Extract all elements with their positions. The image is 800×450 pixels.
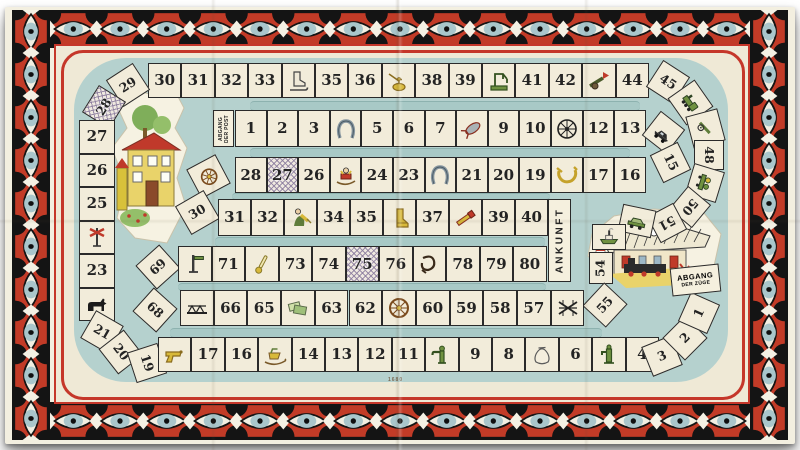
train-cell-33: 33 bbox=[248, 63, 281, 98]
train-cell-number: 42 bbox=[555, 73, 576, 88]
train-cell-34 bbox=[282, 63, 315, 98]
train-cell-6: 6 bbox=[559, 337, 592, 372]
post-cell-number: 40 bbox=[521, 210, 542, 225]
post-cell-number: 12 bbox=[588, 121, 609, 136]
post-cell-27: 27 bbox=[267, 157, 299, 193]
train-cell-31: 31 bbox=[181, 63, 214, 98]
train-cell-65: 65 bbox=[247, 290, 281, 326]
train-cell-number: 36 bbox=[355, 73, 376, 88]
train-cell-number: 21 bbox=[91, 322, 112, 342]
post-cell-20: 20 bbox=[488, 157, 520, 193]
post-cell-number: 1 bbox=[246, 121, 256, 136]
train-cell-76: 76 bbox=[379, 246, 413, 282]
sack-icon bbox=[530, 343, 554, 367]
post-cell-18 bbox=[551, 157, 583, 193]
train-cell-number: 68 bbox=[144, 300, 165, 321]
steamboat-icon bbox=[599, 227, 619, 247]
post-cell-number: 28 bbox=[240, 168, 261, 183]
crossing-sign-icon bbox=[85, 225, 109, 249]
satchel-icon bbox=[417, 252, 441, 276]
train-cell-number: 73 bbox=[285, 257, 306, 272]
post-cell-17: 17 bbox=[583, 157, 615, 193]
train-cell-35: 35 bbox=[315, 63, 348, 98]
train-cell-number: 60 bbox=[422, 301, 443, 316]
post-cell-number: 24 bbox=[367, 168, 388, 183]
post-cell-2: 2 bbox=[267, 110, 299, 147]
train-cell-number: 71 bbox=[218, 257, 239, 272]
post-cell-number: 13 bbox=[620, 121, 641, 136]
post-cell-37: 37 bbox=[416, 199, 449, 236]
post-cell-21: 21 bbox=[456, 157, 488, 193]
post-cell-34: 34 bbox=[317, 199, 350, 236]
field-gun-icon bbox=[693, 116, 717, 140]
train-cell-number: 6 bbox=[570, 347, 580, 362]
train-cell-80: 80 bbox=[513, 246, 547, 282]
train-cell-number: 38 bbox=[421, 73, 442, 88]
horseshoe-icon bbox=[428, 163, 452, 187]
train-cell-number: 79 bbox=[486, 257, 507, 272]
post-cell-38 bbox=[449, 199, 482, 236]
post-cell-number: 20 bbox=[493, 168, 514, 183]
post-cell-number: 7 bbox=[435, 121, 445, 136]
pistol-icon bbox=[163, 343, 187, 367]
train-cell-number: 30 bbox=[154, 73, 175, 88]
train-cell-number: 25 bbox=[87, 196, 108, 211]
boot-icon bbox=[388, 206, 412, 230]
train-cell-number: 23 bbox=[87, 263, 108, 278]
post-cell-number: 17 bbox=[588, 168, 609, 183]
semaphore-icon bbox=[183, 252, 207, 276]
train-cell-60: 60 bbox=[416, 290, 450, 326]
eye-border-bottom bbox=[50, 402, 750, 440]
train-cell-number: 12 bbox=[365, 347, 386, 362]
post-cell-12: 12 bbox=[583, 110, 615, 147]
wagon-wheel-icon bbox=[555, 117, 579, 141]
post-cell-number: 31 bbox=[224, 210, 245, 225]
train-cell-number: 51 bbox=[656, 213, 677, 232]
train-cell-number: 13 bbox=[331, 347, 352, 362]
cannon-icon bbox=[587, 69, 611, 93]
eye-border-right bbox=[750, 10, 788, 440]
train-cell-number: 32 bbox=[221, 73, 242, 88]
train-cell-8: 8 bbox=[492, 337, 525, 372]
post-cell-13: 13 bbox=[614, 110, 646, 147]
post-cell-26: 26 bbox=[298, 157, 330, 193]
eye-border-top bbox=[50, 10, 750, 48]
train-cell-16: 16 bbox=[225, 337, 258, 372]
train-cell-number: 28 bbox=[94, 96, 114, 117]
train-cell-77 bbox=[413, 246, 447, 282]
train-cell-63: 63 bbox=[315, 290, 349, 326]
train-cell-number: 39 bbox=[455, 73, 476, 88]
post-cell-4 bbox=[330, 110, 362, 147]
harvest-woman-icon bbox=[289, 206, 313, 230]
train-cell-75: 75 bbox=[346, 246, 380, 282]
motorcar-green-icon bbox=[625, 209, 649, 233]
post-cell-number: 6 bbox=[404, 121, 414, 136]
bridge-icon bbox=[185, 296, 209, 320]
post-cell-31: 31 bbox=[218, 199, 251, 236]
post-cell-6: 6 bbox=[393, 110, 425, 147]
post-cell-number: 35 bbox=[356, 210, 377, 225]
train-cell-number: 1 bbox=[692, 306, 707, 319]
train-cell-17: 17 bbox=[191, 337, 224, 372]
spyglass-icon bbox=[454, 206, 478, 230]
train-cell-number: 9 bbox=[470, 347, 480, 362]
post-cell-24: 24 bbox=[361, 157, 393, 193]
post-cell-number: 16 bbox=[620, 168, 641, 183]
post-cell-7: 7 bbox=[425, 110, 457, 147]
train-cell-30: 30 bbox=[148, 63, 181, 98]
banknotes-icon bbox=[286, 296, 310, 320]
train-cell-number: 14 bbox=[298, 347, 319, 362]
post-cell-number: 3 bbox=[309, 121, 319, 136]
finish-cell: ANKUNFT bbox=[548, 199, 571, 282]
train-cell-24 bbox=[79, 221, 115, 255]
train-cell-59: 59 bbox=[450, 290, 484, 326]
train-cell-58: 58 bbox=[483, 290, 517, 326]
coach-wheel-icon bbox=[195, 163, 222, 190]
post-cell-number: 19 bbox=[525, 168, 546, 183]
train-cell-number: 75 bbox=[352, 257, 373, 272]
rail-switch-icon bbox=[556, 296, 580, 320]
train-cell-23: 23 bbox=[79, 254, 115, 288]
post-cell-number: 27 bbox=[272, 168, 293, 183]
post-cell-10: 10 bbox=[519, 110, 551, 147]
post-cell-number: 32 bbox=[257, 210, 278, 225]
train-cell-number: 33 bbox=[254, 73, 275, 88]
train-cell-11: 11 bbox=[392, 337, 425, 372]
train-cell-32: 32 bbox=[215, 63, 248, 98]
train-cell-18 bbox=[158, 337, 191, 372]
train-cell-14: 14 bbox=[292, 337, 325, 372]
water-pump-icon bbox=[597, 343, 621, 367]
train-cell-number: 44 bbox=[622, 73, 643, 88]
train-cell-number: 17 bbox=[198, 347, 219, 362]
train-cell-10 bbox=[425, 337, 458, 372]
post-cell-36 bbox=[383, 199, 416, 236]
train-cell-53 bbox=[592, 224, 626, 250]
post-cell-number: 30 bbox=[187, 203, 208, 223]
post-cell-28: 28 bbox=[235, 157, 267, 193]
train-cell-number: 29 bbox=[117, 75, 138, 95]
train-cell-74: 74 bbox=[312, 246, 346, 282]
train-cell-number: 66 bbox=[220, 301, 241, 316]
train-cell-number: 35 bbox=[321, 73, 342, 88]
post-cell-number: 15 bbox=[661, 152, 680, 173]
train-cell-number: 48 bbox=[703, 146, 716, 163]
train-cell-number: 50 bbox=[680, 196, 701, 217]
post-start-line2: DER POST bbox=[224, 115, 230, 143]
train-cell-25: 25 bbox=[79, 187, 115, 221]
train-cell-number: 41 bbox=[522, 73, 543, 88]
train-cell-number: 3 bbox=[656, 349, 669, 364]
post-cell-11 bbox=[551, 110, 583, 147]
post-cell-number: 21 bbox=[462, 168, 483, 183]
train-cell-41: 41 bbox=[515, 63, 548, 98]
sled-icon bbox=[334, 163, 358, 187]
horseshoe-icon bbox=[334, 117, 358, 141]
post-cell-40: 40 bbox=[515, 199, 548, 236]
sleigh-icon bbox=[263, 343, 287, 367]
post-cell-22 bbox=[425, 157, 457, 193]
train-cell-number: 2 bbox=[677, 331, 692, 346]
train-cell-67 bbox=[180, 290, 214, 326]
train-cell-number: 69 bbox=[147, 257, 168, 278]
train-cell-9: 9 bbox=[459, 337, 492, 372]
train-cell-36: 36 bbox=[348, 63, 381, 98]
train-cell-61 bbox=[382, 290, 416, 326]
post-start-line1: ABGANG bbox=[218, 115, 224, 143]
motorcar-icon bbox=[649, 118, 677, 146]
crayfish-icon bbox=[460, 117, 484, 141]
train-cell-7 bbox=[525, 337, 558, 372]
train-cell-number: 63 bbox=[321, 301, 342, 316]
water-crane-icon bbox=[430, 343, 454, 367]
train-cell-number: 19 bbox=[138, 353, 155, 373]
post-cell-number: 5 bbox=[372, 121, 382, 136]
post-cell-number: 2 bbox=[277, 121, 287, 136]
post-cell-number: 34 bbox=[323, 210, 344, 225]
train-cell-42: 42 bbox=[549, 63, 582, 98]
train-cell-79: 79 bbox=[480, 246, 514, 282]
train-cell-78: 78 bbox=[446, 246, 480, 282]
train-cell-number: 74 bbox=[318, 257, 339, 272]
train-cell-57: 57 bbox=[517, 290, 551, 326]
eye-border-left bbox=[12, 10, 50, 440]
train-cell-number: 16 bbox=[231, 347, 252, 362]
train-start-label: ABGANG DER ZÜGE bbox=[670, 264, 722, 297]
train-cell-number: 26 bbox=[87, 163, 108, 178]
train-cell-54: 54 bbox=[589, 252, 613, 284]
post-cell-number: 37 bbox=[422, 210, 443, 225]
train-cell-12: 12 bbox=[358, 337, 391, 372]
train-cell-number: 8 bbox=[503, 347, 513, 362]
train-cell-66: 66 bbox=[214, 290, 248, 326]
train-cell-73: 73 bbox=[279, 246, 313, 282]
train-cell-70 bbox=[178, 246, 212, 282]
post-cell-1: 1 bbox=[235, 110, 267, 147]
train-cell-44: 44 bbox=[616, 63, 649, 98]
train-cell-62: 62 bbox=[349, 290, 383, 326]
train-cell-39: 39 bbox=[449, 63, 482, 98]
post-cell-33 bbox=[284, 199, 317, 236]
post-cell-number: 9 bbox=[498, 121, 508, 136]
train-cell-15 bbox=[258, 337, 291, 372]
post-cell-9: 9 bbox=[488, 110, 520, 147]
train-cell-64 bbox=[281, 290, 315, 326]
train-cell-27: 27 bbox=[79, 120, 115, 154]
train-cell-26: 26 bbox=[79, 154, 115, 188]
post-cell-16: 16 bbox=[614, 157, 646, 193]
game-board: 1235679101213151617192021232426272830313… bbox=[0, 0, 800, 450]
post-cell-35: 35 bbox=[350, 199, 383, 236]
thermometer-icon bbox=[250, 252, 274, 276]
post-cell-32: 32 bbox=[251, 199, 284, 236]
train-cell-number: 27 bbox=[87, 129, 108, 144]
train-cell-number: 54 bbox=[595, 259, 608, 276]
train-cell-56 bbox=[551, 290, 585, 326]
train-cell-number: 58 bbox=[490, 301, 511, 316]
train-cell-number: 62 bbox=[355, 301, 376, 316]
post-cell-5: 5 bbox=[361, 110, 393, 147]
train-cell-number: 80 bbox=[519, 257, 540, 272]
post-start-label: ABGANGDER POST bbox=[213, 110, 234, 147]
train-cell-number: 45 bbox=[657, 72, 678, 92]
post-cell-number: 23 bbox=[398, 168, 419, 183]
ice-skate-icon bbox=[286, 69, 310, 93]
post-cell-8 bbox=[456, 110, 488, 147]
train-cell-5 bbox=[592, 337, 625, 372]
plate-number: 1680 bbox=[388, 377, 403, 383]
train-cell-number: 11 bbox=[398, 347, 419, 362]
train-cell-71: 71 bbox=[212, 246, 246, 282]
train-cell-40 bbox=[482, 63, 515, 98]
finish-label: ANKUNFT bbox=[554, 208, 565, 274]
post-cell-number: 26 bbox=[304, 168, 325, 183]
train-cell-37 bbox=[382, 63, 415, 98]
post-cell-3: 3 bbox=[298, 110, 330, 147]
train-cell-43 bbox=[582, 63, 615, 98]
post-cell-number: 10 bbox=[525, 121, 546, 136]
post-cell-19: 19 bbox=[519, 157, 551, 193]
train-cell-number: 76 bbox=[385, 257, 406, 272]
post-cell-number: 39 bbox=[488, 210, 509, 225]
train-cell-number: 57 bbox=[523, 301, 544, 316]
crane-icon bbox=[487, 69, 511, 93]
train-cell-number: 55 bbox=[594, 294, 615, 315]
post-horn-icon bbox=[555, 163, 579, 187]
train-cell-number: 31 bbox=[188, 73, 209, 88]
train-cell-number: 59 bbox=[456, 301, 477, 316]
coach-wheel-icon bbox=[387, 296, 411, 320]
post-cell-39: 39 bbox=[482, 199, 515, 236]
train-cell-number: 65 bbox=[254, 301, 275, 316]
post-cell-23: 23 bbox=[393, 157, 425, 193]
post-cell-25 bbox=[330, 157, 362, 193]
oil-can-icon bbox=[386, 69, 410, 93]
train-cell-38: 38 bbox=[415, 63, 448, 98]
train-cell-13: 13 bbox=[325, 337, 358, 372]
train-cell-72 bbox=[245, 246, 279, 282]
train-cell-number: 78 bbox=[452, 257, 473, 272]
